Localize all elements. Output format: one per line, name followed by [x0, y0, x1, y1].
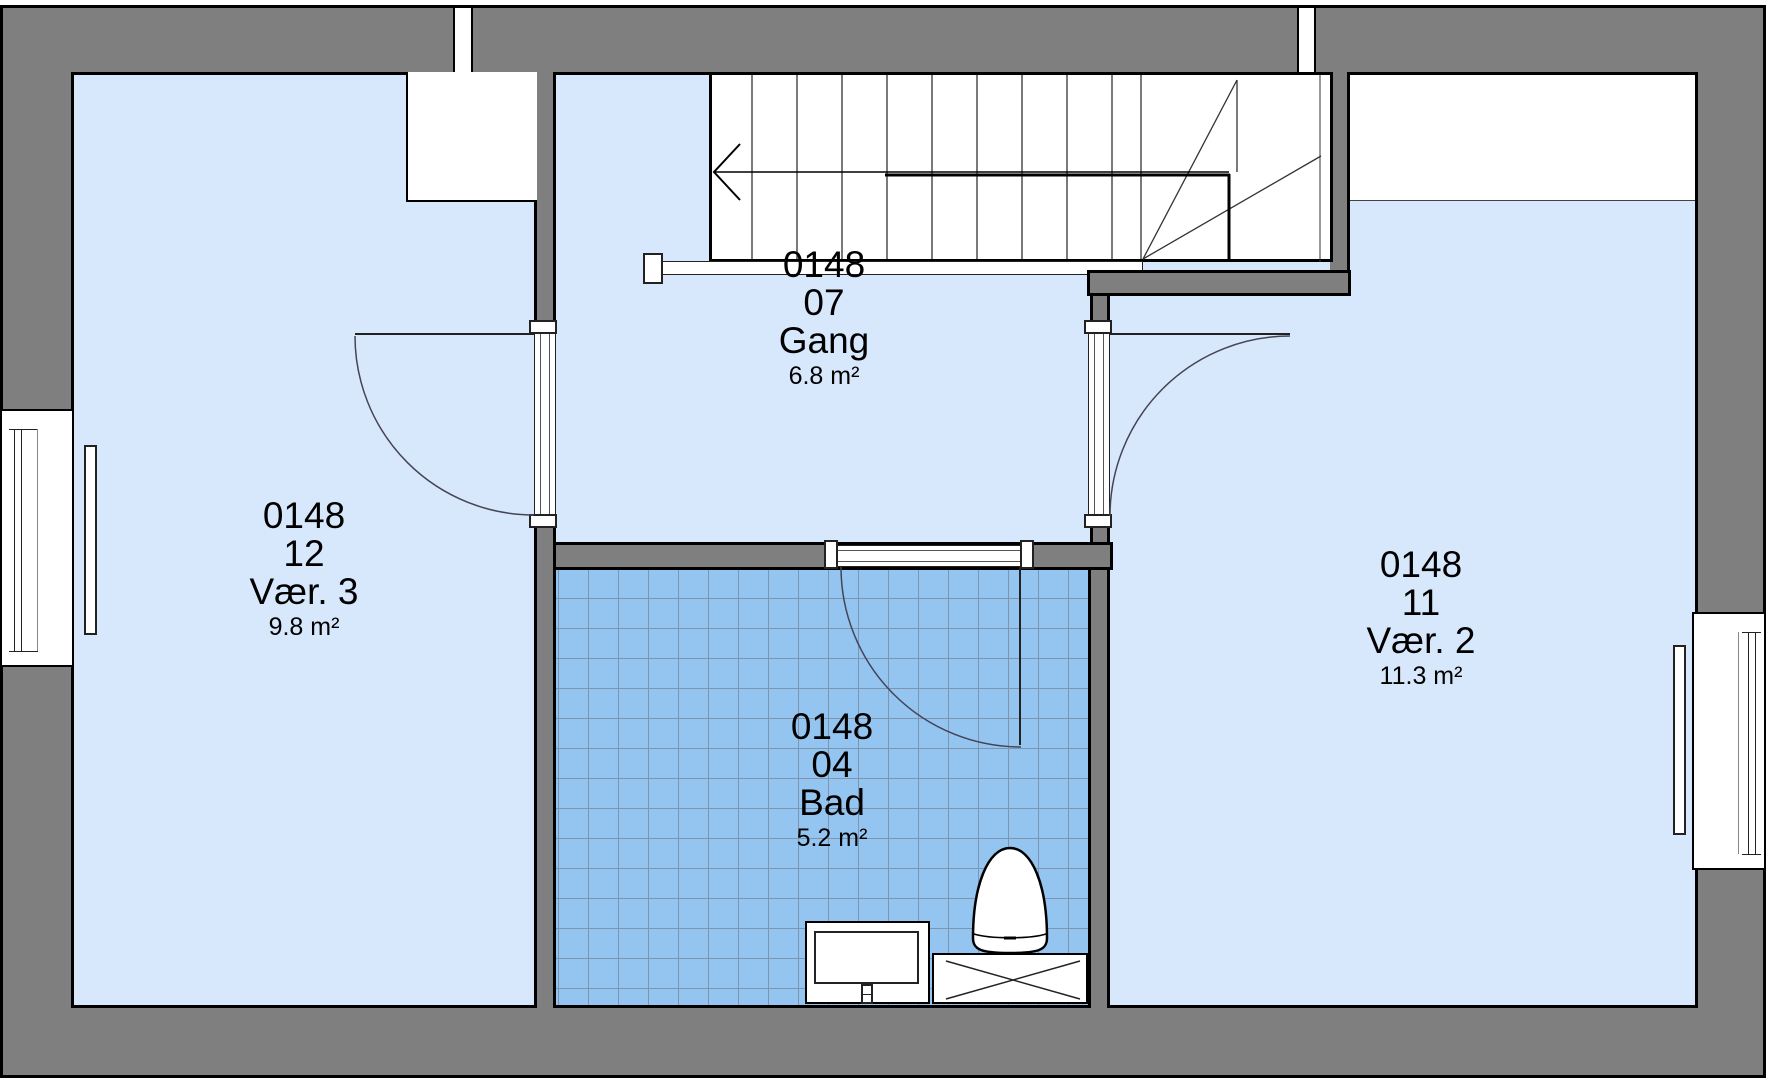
room-label-gang: 0148 07 Gang 6.8 m² — [779, 246, 870, 391]
door-hinge — [1084, 320, 1112, 334]
room-label-bad: 0148 04 Bad 5.2 m² — [791, 708, 873, 853]
window-right — [1692, 612, 1766, 870]
wall-below-stair — [1087, 270, 1351, 296]
room-number: 11 — [1367, 584, 1476, 622]
room-number: 07 — [779, 284, 870, 322]
door-hinge — [529, 514, 557, 528]
window-left — [0, 409, 74, 667]
window-right-open-pane — [1673, 645, 1686, 835]
top-wall-joint-right — [1297, 8, 1316, 72]
door-hinge — [1020, 540, 1034, 569]
room-area: 11.3 m² — [1367, 661, 1476, 691]
door-frame-vaer3 — [534, 333, 556, 517]
room-code: 0148 — [250, 497, 359, 535]
room-name: Vær. 3 — [250, 573, 359, 611]
room-area: 6.8 m² — [779, 361, 870, 391]
top-wall-joint-left — [453, 8, 473, 72]
door-frame-bad — [837, 545, 1022, 567]
floor-plan: 0148 12 Vær. 3 9.8 m² 0148 07 Gang 6.8 m… — [0, 0, 1770, 1080]
appliance-crossbox — [932, 953, 1088, 1004]
room-name: Gang — [779, 322, 870, 360]
staircase — [709, 72, 1333, 262]
room-code: 0148 — [791, 708, 873, 746]
room-area: 5.2 m² — [791, 823, 873, 853]
room-label-vaer2: 0148 11 Vær. 2 11.3 m² — [1367, 546, 1476, 691]
sink-vanity — [805, 921, 930, 1004]
stair-newel-post — [643, 253, 663, 284]
door-hinge — [824, 540, 838, 569]
room-name: Bad — [791, 784, 873, 822]
room-code: 0148 — [1367, 546, 1476, 584]
faucet-icon — [861, 984, 873, 1004]
stair-threshold — [646, 261, 1143, 275]
door-hinge — [529, 320, 557, 334]
door-hinge — [1084, 514, 1112, 528]
room-number: 04 — [791, 746, 873, 784]
window-left-open-pane — [84, 445, 97, 635]
room-number: 12 — [250, 535, 359, 573]
low-headroom-area-left — [406, 72, 537, 202]
room-code: 0148 — [779, 246, 870, 284]
room-label-vaer3: 0148 12 Vær. 3 9.8 m² — [250, 497, 359, 642]
door-frame-vaer2 — [1088, 333, 1110, 517]
low-headroom-area-right — [1350, 75, 1695, 201]
room-name: Vær. 2 — [1367, 622, 1476, 660]
sink-basin — [814, 931, 919, 984]
room-area: 9.8 m² — [250, 612, 359, 642]
